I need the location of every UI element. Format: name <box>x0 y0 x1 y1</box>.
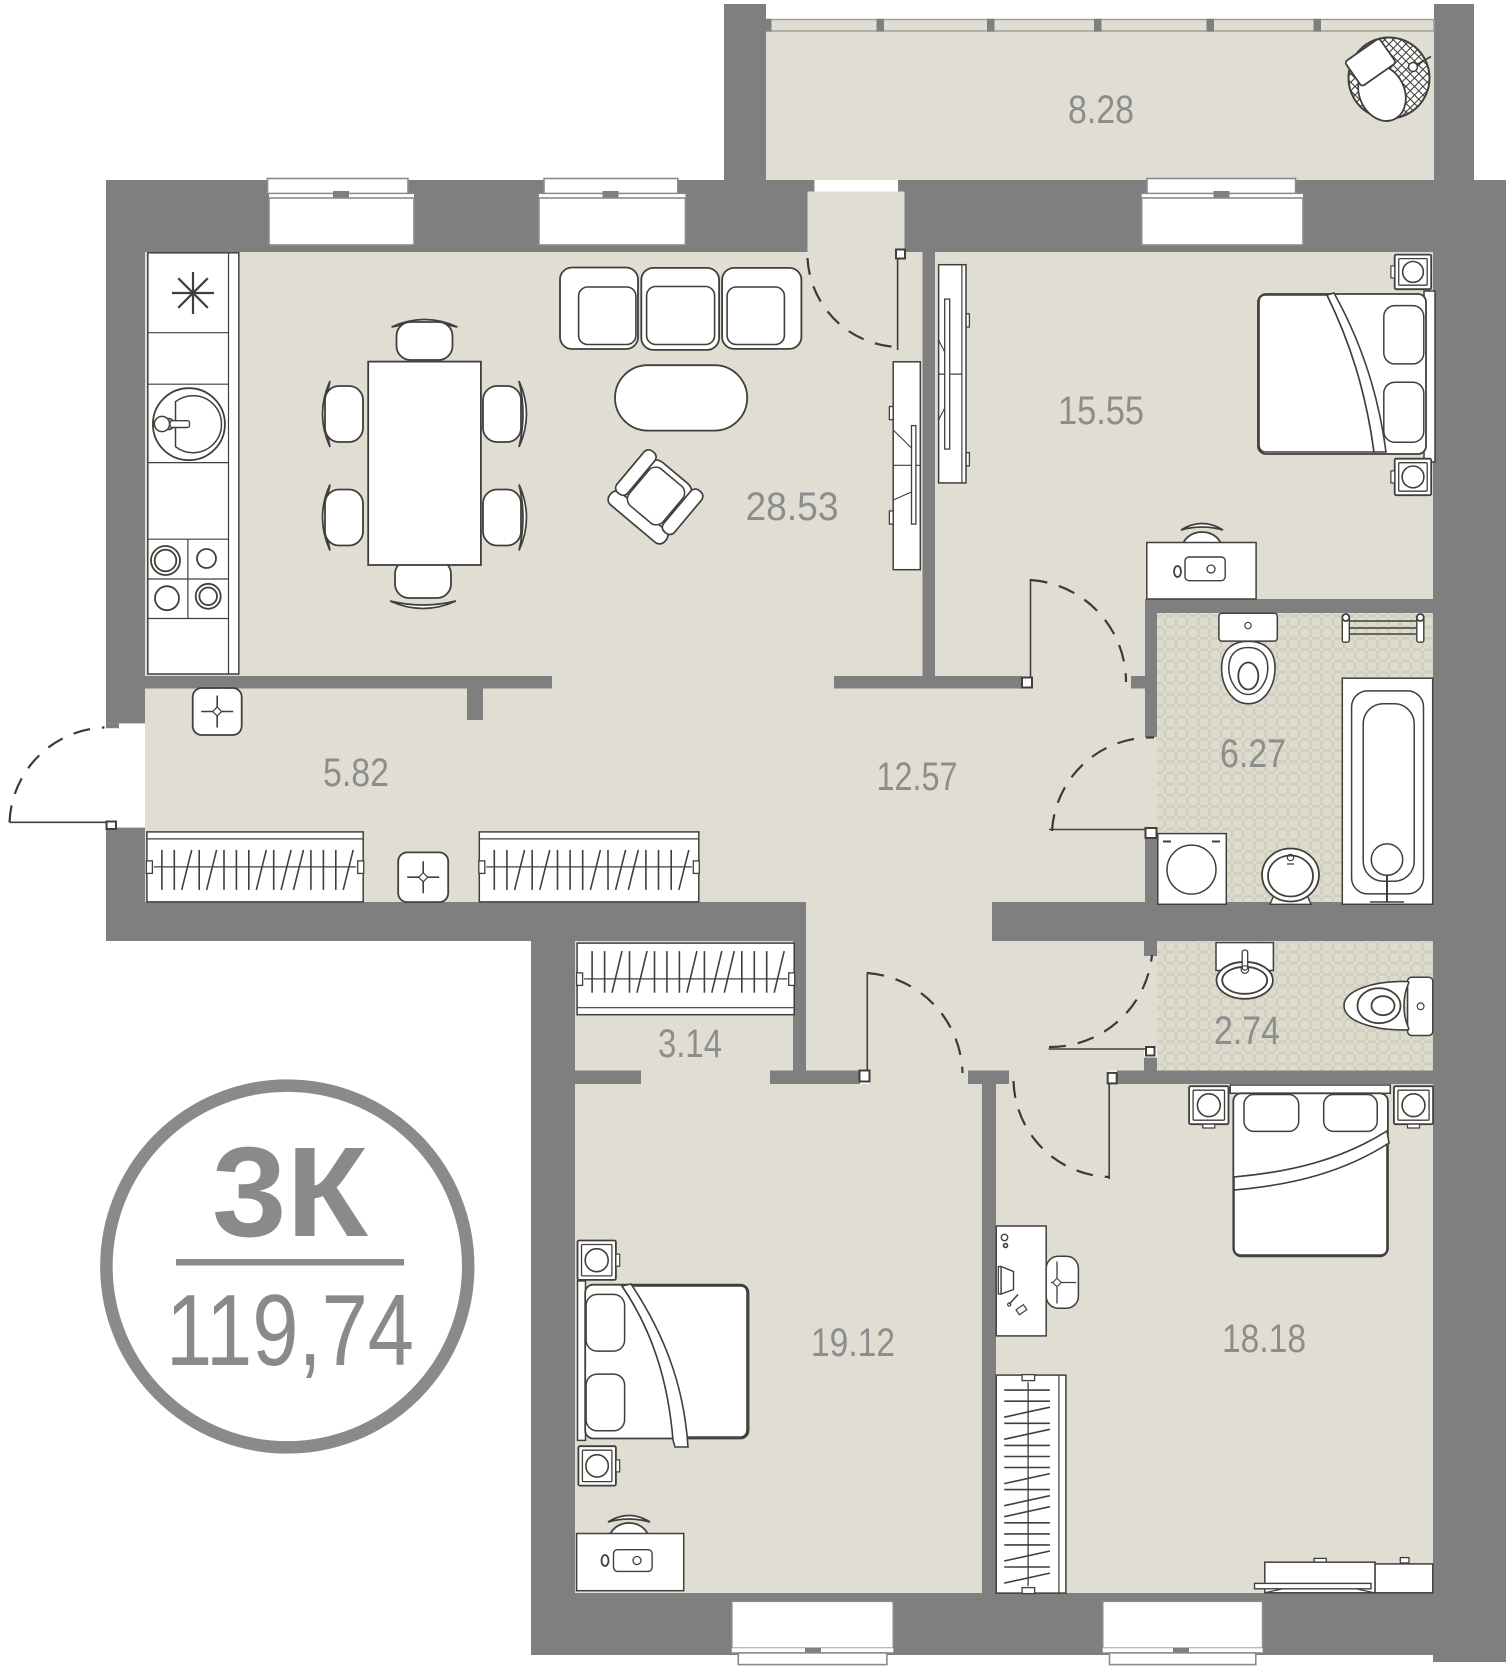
svg-text:5.82: 5.82 <box>323 751 389 795</box>
svg-text:6.27: 6.27 <box>1220 732 1286 776</box>
svg-text:28.53: 28.53 <box>746 485 839 529</box>
svg-text:8.28: 8.28 <box>1068 88 1134 132</box>
svg-text:19.12: 19.12 <box>811 1321 895 1365</box>
svg-text:18.18: 18.18 <box>1222 1317 1306 1361</box>
svg-text:119,74: 119,74 <box>166 1275 414 1387</box>
svg-text:3К: 3К <box>212 1121 369 1264</box>
svg-text:12.57: 12.57 <box>877 755 958 799</box>
svg-text:2.74: 2.74 <box>1214 1009 1280 1053</box>
svg-text:3.14: 3.14 <box>658 1022 722 1066</box>
svg-text:15.55: 15.55 <box>1058 389 1144 433</box>
